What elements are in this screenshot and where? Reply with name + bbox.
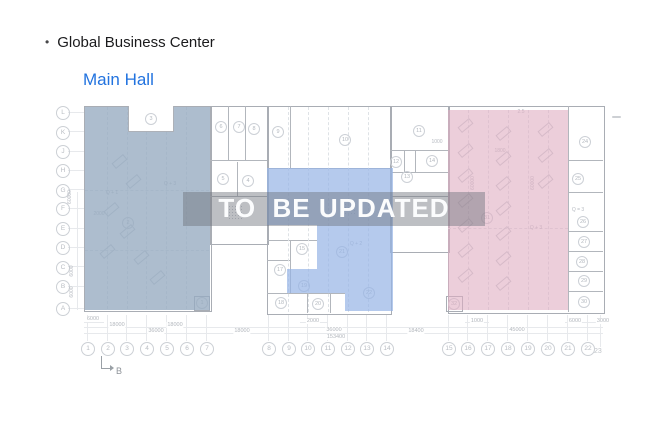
grid-number: 21 (561, 342, 575, 356)
room-number: 24 (579, 136, 591, 148)
room-number: 11 (413, 125, 425, 137)
grid-number: 7 (200, 342, 214, 356)
dimension-label: 1000 (470, 318, 484, 324)
grid-number: 12 (341, 342, 355, 356)
room-number: 12 (390, 156, 402, 168)
dimension-label: 36000 (147, 328, 164, 334)
grid-number: 23 (594, 348, 602, 355)
room-number: 28 (576, 256, 588, 268)
grid-number: 10 (301, 342, 315, 356)
grid-number: 16 (461, 342, 475, 356)
grid-number: 13 (360, 342, 374, 356)
grid-letter: H (56, 164, 70, 178)
room-number: 3 (145, 113, 157, 125)
room-number: 5 (217, 173, 229, 185)
dimension-label: 18000 (166, 322, 183, 328)
room-number: 29 (578, 275, 590, 287)
grid-letter: F (56, 202, 70, 216)
room-number: 25 (572, 173, 584, 185)
room-number: 30 (578, 296, 590, 308)
room-number: 14 (426, 155, 438, 167)
dimension-label: 36000 (325, 327, 342, 333)
dimension-label: 18000 (108, 322, 125, 328)
grid-number: 19 (521, 342, 535, 356)
room-number: 27 (578, 236, 590, 248)
dimension-label: 45000 (508, 327, 525, 333)
dimension-label: 3000 (596, 318, 610, 324)
grid-number: 4 (140, 342, 154, 356)
grid-letter: D (56, 241, 70, 255)
grid-number: 15 (442, 342, 456, 356)
dimension-label: 6000 (69, 286, 75, 297)
section-marker-label: B (116, 366, 122, 376)
grid-number: 14 (380, 342, 394, 356)
grid-number: 6 (180, 342, 194, 356)
bullet-icon: • (45, 35, 49, 50)
room-number: 13 (401, 171, 413, 183)
dimension-label: 60000 (67, 190, 73, 204)
grid-number: 3 (120, 342, 134, 356)
inline-dimension: 1000 (431, 139, 442, 145)
room-number: 26 (577, 216, 589, 228)
dimension-label: 153400 (326, 334, 346, 340)
grid-number: 20 (541, 342, 555, 356)
dimension-label: 6000 (568, 318, 582, 324)
grid-number: 17 (481, 342, 495, 356)
dimension-label: 18400 (407, 328, 424, 334)
page-title: • Global Business Center (45, 34, 215, 51)
grid-letter: L (56, 106, 70, 120)
room-number: 6 (215, 121, 227, 133)
room-number: 9 (272, 126, 284, 138)
room-number: 7 (233, 121, 245, 133)
room-number: 8 (248, 123, 260, 135)
grid-letter: B (56, 280, 70, 294)
dimension-label: 6000 (69, 265, 75, 276)
grid-number: 11 (321, 342, 335, 356)
dash-icon (612, 116, 621, 118)
grid-number: 8 (262, 342, 276, 356)
grid-letter: E (56, 222, 70, 236)
grid-number: 18 (501, 342, 515, 356)
room-number: 10 (339, 134, 351, 146)
watermark-banner: TO BE UPDATED (183, 192, 485, 226)
grid-number: 5 (160, 342, 174, 356)
page-title-text: Global Business Center (57, 34, 215, 51)
grid-letter: C (56, 261, 70, 275)
overlay-middle-zone (267, 168, 393, 311)
room-number: 4 (242, 175, 254, 187)
area-label: Q = 3 (572, 207, 584, 213)
grid-letter: J (56, 145, 70, 159)
dimension-label: 6000 (86, 316, 100, 322)
grid-number: 2 (101, 342, 115, 356)
grid-number: 9 (282, 342, 296, 356)
grid-letter: K (56, 126, 70, 140)
dimension-label: 2000 (306, 318, 320, 324)
grid-number: 1 (81, 342, 95, 356)
hall-subtitle: Main Hall (83, 70, 154, 90)
grid-letter: A (56, 302, 70, 316)
dimension-label: 18000 (233, 328, 250, 334)
grid-number: 22 (581, 342, 595, 356)
